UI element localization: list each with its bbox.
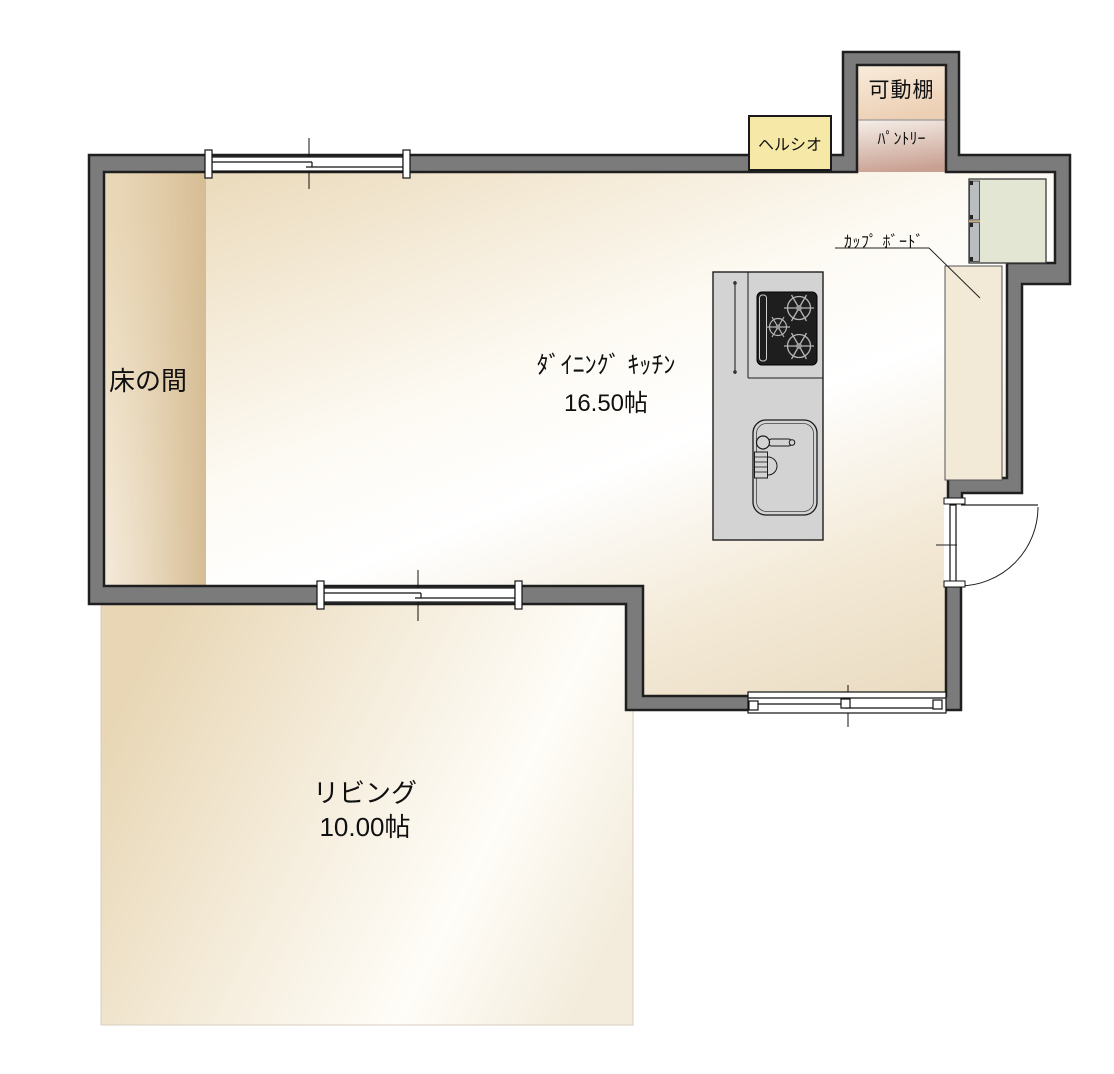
- window-jamb: [515, 581, 522, 609]
- door-jamb: [944, 581, 965, 587]
- cabinet-door-panel: [970, 223, 980, 262]
- door-leaf: [950, 505, 956, 582]
- wall-cabinet: [969, 179, 1046, 263]
- floor-plan: 床の間 ﾀﾞｲﾆﾝｸﾞ ｷｯﾁﾝ 16.50帖 リビング 10.00帖 可動棚 …: [0, 0, 1114, 1074]
- door-swing-arc: [959, 507, 1038, 586]
- kitchen-sink-icon: [753, 420, 817, 515]
- cupboard-counter: [945, 266, 1002, 480]
- pantry-label: ﾊﾟﾝﾄﾘｰ: [857, 125, 946, 149]
- cabinet-door-panel: [970, 181, 980, 220]
- entry-door: [936, 498, 1038, 587]
- window-jamb: [317, 581, 324, 609]
- door-jamb: [944, 498, 965, 504]
- dining-kitchen-label: ﾀﾞｲﾆﾝｸﾞ ｷｯﾁﾝ 16.50帖: [468, 347, 744, 423]
- healsio-appliance-box: ヘルシオ: [748, 115, 832, 171]
- dining-kitchen-name: ﾀﾞｲﾆﾝｸﾞ ｷｯﾁﾝ: [468, 347, 744, 385]
- living-name: リビング: [280, 776, 450, 810]
- dining-kitchen-area: 16.50帖: [468, 385, 744, 423]
- window-jamb: [403, 150, 410, 178]
- living-label: リビング 10.00帖: [280, 776, 450, 844]
- tokonoma-label: 床の間: [100, 361, 196, 398]
- living-area: 10.00帖: [280, 810, 450, 844]
- floor-plan-drawing: [0, 0, 1114, 1074]
- gas-cooktop-icon: [757, 292, 817, 365]
- cupboard-label: ｶｯﾌﾟ ﾎﾞｰﾄﾞ: [832, 228, 936, 252]
- window-jamb: [205, 150, 212, 178]
- movable-shelf-label: 可動棚: [857, 74, 946, 104]
